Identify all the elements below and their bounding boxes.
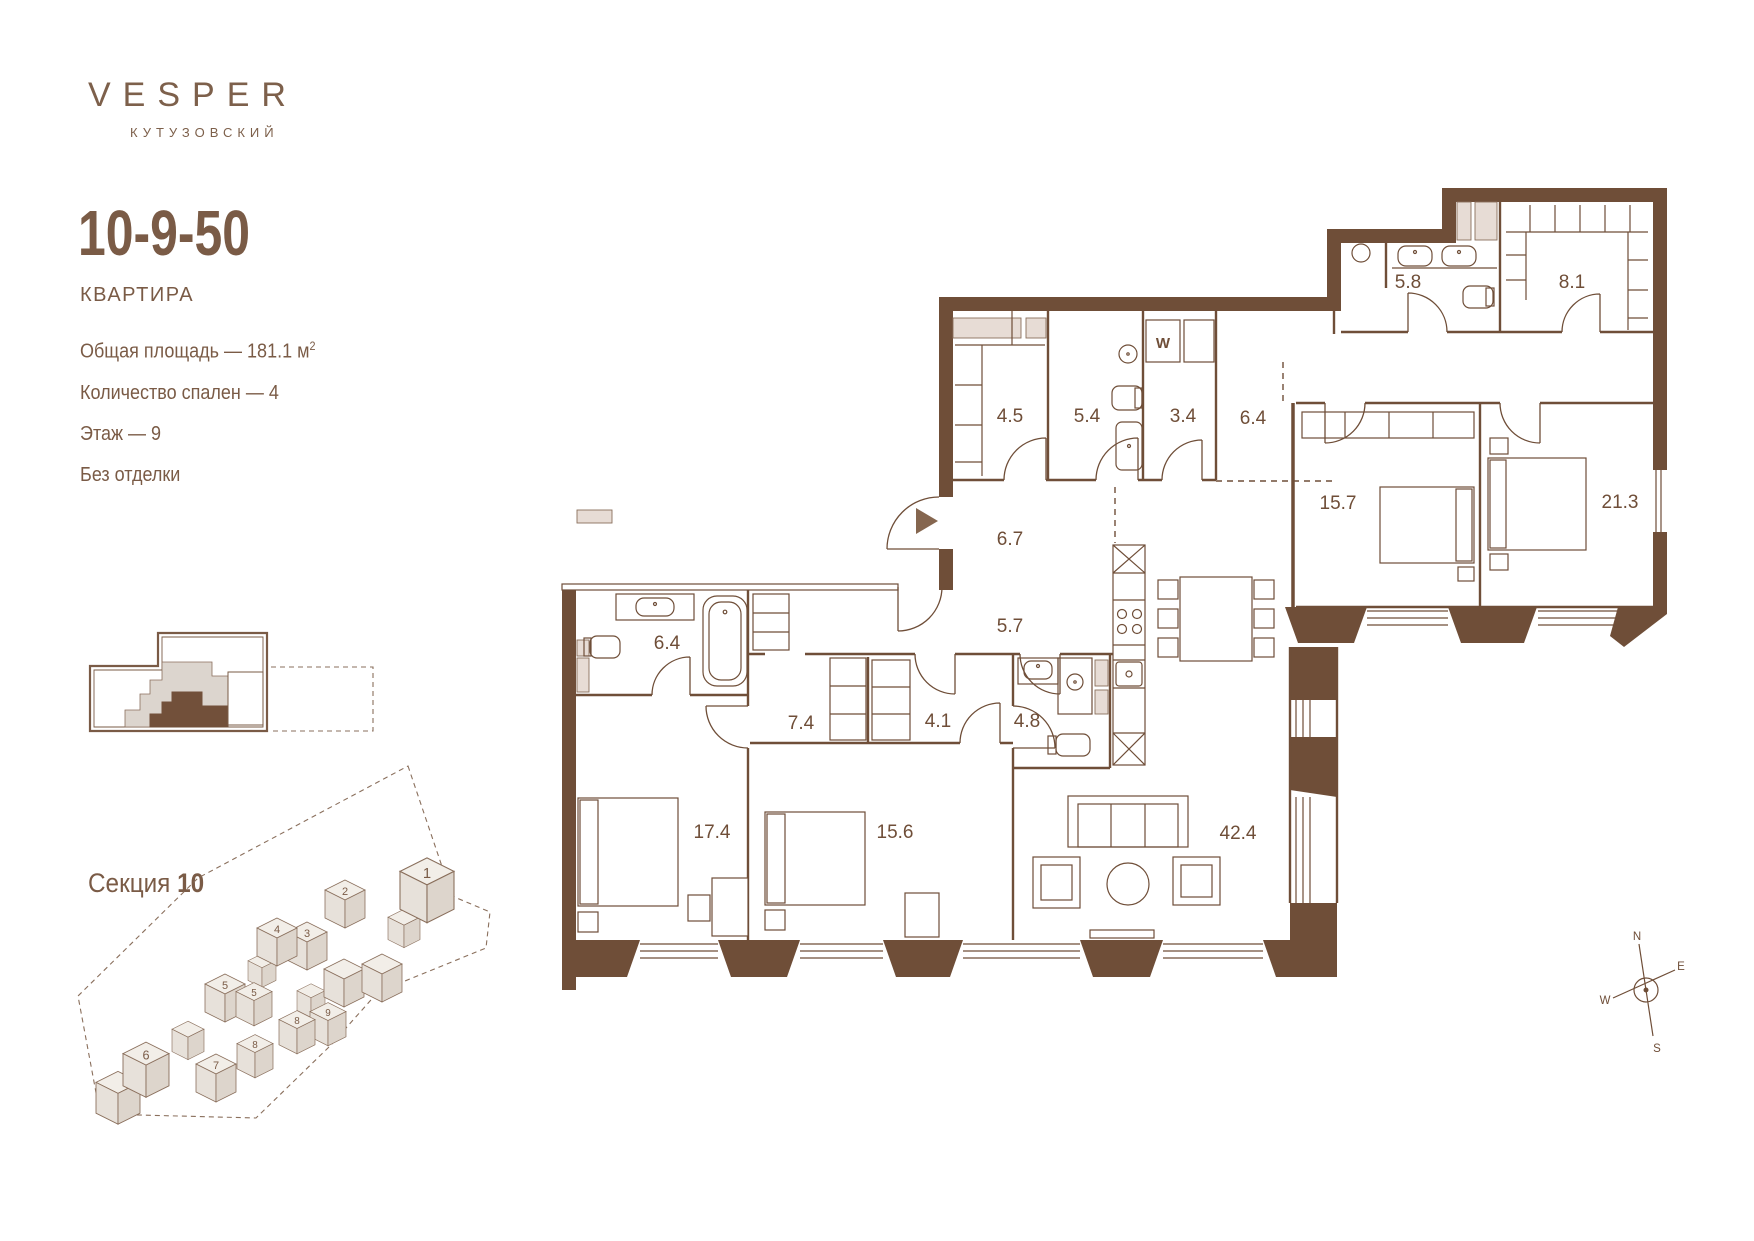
entry-arrow-icon — [916, 508, 938, 534]
room-label-5-8: 5.8 — [1395, 272, 1421, 293]
site-building-5b: 5 — [236, 983, 272, 1026]
room-label-3-4: 3.4 — [1170, 406, 1197, 427]
svg-text:4: 4 — [274, 924, 280, 936]
svg-text:6: 6 — [142, 1048, 149, 1062]
sink-icon — [1442, 246, 1476, 266]
dresser-icon — [905, 893, 939, 937]
svg-text:8: 8 — [294, 1016, 300, 1027]
washing-machine-icon: W — [1146, 320, 1214, 362]
shower-icon — [1058, 658, 1092, 714]
vent-shaft-icon — [1113, 545, 1145, 765]
site-plan: 1 2 3 4 5 5 10 10 9 8 8 7 6 — [78, 766, 490, 1124]
svg-text:10: 10 — [376, 960, 388, 972]
chair-icon — [688, 895, 710, 921]
site-building-4: 4 — [257, 918, 297, 966]
room-label-6-4-bath: 6.4 — [654, 633, 681, 654]
window-bays-east — [1290, 647, 1337, 940]
svg-text:1: 1 — [423, 866, 431, 882]
bath-5-8-fixtures — [1352, 244, 1497, 308]
toilet-icon — [590, 636, 620, 658]
zone-dashed-lines — [1115, 362, 1334, 543]
compass-icon: N E S W — [1600, 931, 1686, 1055]
room-label-4-8: 4.8 — [1014, 711, 1040, 732]
room-label-6-7: 6.7 — [997, 529, 1023, 550]
hall-partition-wall — [562, 584, 944, 590]
site-building-9: 9 — [310, 1003, 346, 1046]
room-label-4-1: 4.1 — [925, 711, 951, 732]
svg-text:8: 8 — [252, 1040, 258, 1051]
toilet-icon — [1112, 386, 1142, 410]
light-icon — [1352, 244, 1370, 262]
wardrobe-icon — [1302, 412, 1474, 438]
room-label-15-7: 15.7 — [1320, 493, 1357, 514]
site-building-1: 1 — [400, 858, 454, 923]
tv-console-icon — [1090, 930, 1154, 938]
site-building-8b: 8 — [237, 1035, 273, 1078]
room-label-5-4: 5.4 — [1074, 406, 1101, 427]
compass-south: S — [1653, 1043, 1661, 1055]
shaft-boxes — [577, 202, 1497, 714]
svg-text:9: 9 — [325, 1008, 331, 1019]
site-building-6: 6 — [123, 1042, 169, 1097]
drawing-canvas: 1 2 3 4 5 5 10 10 9 8 8 7 6 — [0, 0, 1754, 1241]
floor-plan-page: VESPER КУТУЗОВСКИЙ 10-9-50 КВАРТИРА Обща… — [0, 0, 1754, 1241]
svg-text:5: 5 — [251, 988, 257, 999]
room-label-6-4-corridor: 6.4 — [1240, 408, 1267, 429]
compass-north: N — [1633, 931, 1641, 943]
room-label-21-3: 21.3 — [1602, 492, 1639, 513]
bed-icon-17-4 — [578, 798, 748, 936]
dressing-shelves — [1506, 205, 1648, 330]
room-label-5-7: 5.7 — [997, 616, 1023, 637]
site-building-8a: 8 — [279, 1011, 315, 1054]
bed-icon-21-3 — [1488, 438, 1586, 570]
floor-plan: W — [562, 188, 1667, 990]
dining-table-icon — [1158, 577, 1274, 661]
svg-text:10: 10 — [338, 965, 350, 977]
coffee-table-icon — [1107, 863, 1149, 905]
toilet-icon — [1463, 286, 1493, 308]
window-bays-bedrooms — [1285, 607, 1667, 647]
bed-icon-15-7 — [1380, 487, 1474, 563]
svg-text:2: 2 — [342, 886, 348, 898]
compass-west: W — [1600, 995, 1611, 1007]
kitchen-counter — [1113, 545, 1145, 765]
room-label-42-4: 42.4 — [1220, 823, 1257, 844]
room-label-4-5: 4.5 — [997, 406, 1023, 427]
toilet-icon — [1056, 734, 1090, 756]
site-building-2: 2 — [325, 880, 365, 928]
room-label-7-4: 7.4 — [788, 713, 815, 734]
room-label-15-6: 15.6 — [877, 822, 914, 843]
kitchen-sink-icon — [1116, 662, 1142, 686]
svg-text:3: 3 — [304, 928, 310, 940]
floor-locator-diagram — [90, 633, 373, 731]
window-bays-south — [563, 940, 1337, 977]
site-building-7: 7 — [196, 1054, 236, 1102]
sofa-icon — [1068, 796, 1188, 847]
svg-text:7: 7 — [213, 1060, 219, 1072]
svg-text:5: 5 — [222, 980, 228, 992]
sink-icon — [1119, 345, 1137, 363]
site-building-10b-highlighted: 10 — [362, 954, 402, 1002]
kitchen-hob-icon — [1118, 610, 1142, 634]
washer-label: W — [1156, 335, 1171, 352]
desk-icon — [712, 878, 748, 936]
closet-shelves — [753, 594, 910, 740]
site-building-10a-highlighted: 10 — [324, 959, 364, 1007]
room-label-17-4: 17.4 — [694, 822, 731, 843]
room-label-8-1: 8.1 — [1559, 272, 1585, 293]
sink-icon — [1398, 246, 1432, 266]
site-building — [172, 1021, 204, 1059]
compass-east: E — [1677, 961, 1685, 973]
